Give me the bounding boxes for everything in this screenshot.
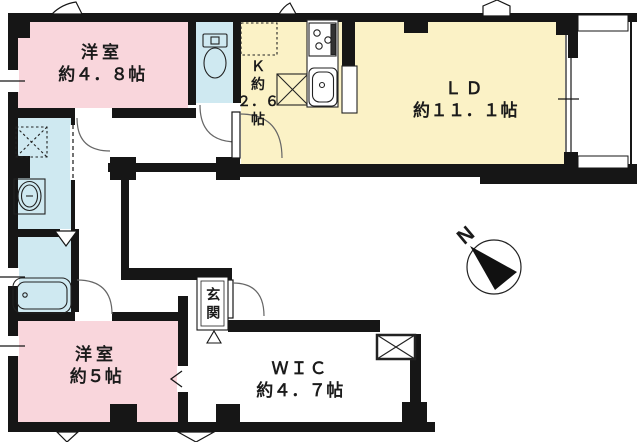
- balcony-top-opening: [578, 15, 628, 31]
- floor-plan: 洋室 約４．８帖 Ｋ 約 ２．６ 帖 ＬＤ 約１１．１帖 洋室 約５帖 ＷＩＣ …: [0, 0, 640, 442]
- wic-label: ＷＩＣ 約４．７帖: [220, 358, 380, 402]
- entrance-label: 玄関: [204, 283, 222, 327]
- bedroom2-label: 洋室 約５帖: [26, 344, 166, 388]
- balcony-edge-bar: [578, 156, 628, 168]
- living-dining-label: ＬＤ 約１１．１帖: [388, 78, 543, 122]
- bedroom2-door-arc: [77, 280, 112, 314]
- entrance-door-arc: [233, 283, 264, 316]
- pipe-space-box: [377, 335, 415, 359]
- bedroom1-label: 洋室 約４．８帖: [32, 42, 172, 86]
- compass-icon: [467, 240, 521, 294]
- kitchen-label: Ｋ 約 ２．６ 帖: [234, 58, 282, 128]
- counter-return: [342, 66, 357, 113]
- entrance-step-mark: [207, 331, 221, 343]
- bedroom1-door-arc: [77, 118, 110, 151]
- bathroom-area: [18, 237, 71, 312]
